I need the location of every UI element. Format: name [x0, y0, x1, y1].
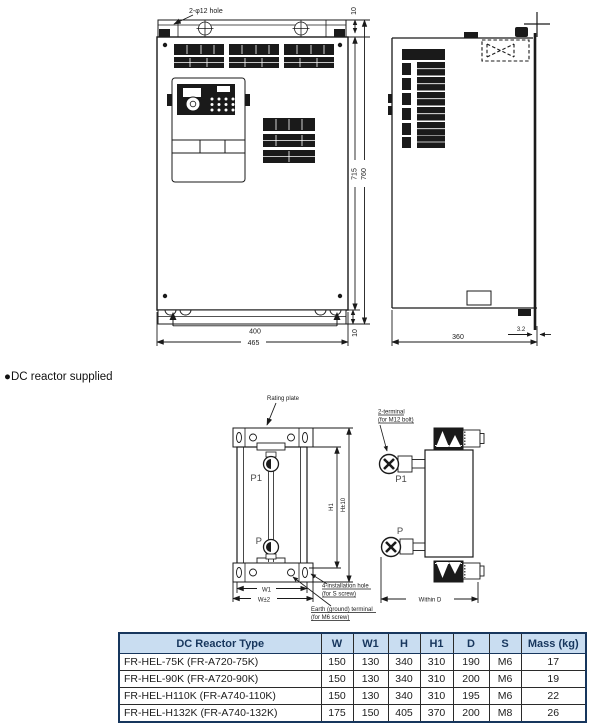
cell-mass: 19 — [521, 671, 586, 688]
front-height-dimensions: 10 715 760 — [346, 7, 370, 324]
dim-h1: H1 — [329, 503, 335, 511]
cell-s: M6 — [489, 654, 521, 671]
dim-w-tol: W±2 — [258, 598, 271, 604]
reactor-p-terminal — [264, 540, 279, 560]
reactor-width-dimensions: W1 W±2 — [233, 582, 313, 604]
cell-h1: 310 — [420, 688, 453, 705]
installation-hole-note: 4-installation hole (for S screw) — [311, 574, 371, 598]
cell-d: 190 — [453, 654, 489, 671]
cell-type: FR-HEL-H132K (FR-A740-132K) — [119, 705, 321, 723]
section-label: ●DC reactor supplied — [4, 371, 113, 383]
header-w: W — [321, 633, 353, 654]
technical-drawings: 2-φ12 hole — [0, 0, 600, 632]
dim-360: 360 — [452, 334, 464, 341]
reactor-side-body — [425, 450, 473, 557]
inverter-front-view: 2-φ12 hole — [157, 7, 370, 347]
p-label: P — [256, 536, 262, 547]
cell-d: 200 — [453, 671, 489, 688]
table-row: FR-HEL-75K (FR-A720-75K) 150 130 340 310… — [119, 654, 586, 671]
hole-note-label: 2-φ12 hole — [189, 8, 223, 15]
dim-within-d: Within D — [419, 598, 442, 604]
cell-h1: 310 — [420, 671, 453, 688]
setting-dial — [186, 97, 200, 111]
cell-w: 150 — [321, 654, 353, 671]
terminal-note: 2-terminal (for M12 bolt) — [378, 410, 414, 452]
cell-w: 150 — [321, 688, 353, 705]
table-row: FR-HEL-90K (FR-A720-90K) 150 130 340 310… — [119, 671, 586, 688]
header-d: D — [453, 633, 489, 654]
cell-type: FR-HEL-90K (FR-A720-90K) — [119, 671, 321, 688]
header-h1: H1 — [420, 633, 453, 654]
cell-mass: 22 — [521, 688, 586, 705]
cooling-fan — [482, 40, 529, 61]
dc-reactor-table: DC Reactor Type W W1 H H1 D S Mass (kg) … — [118, 632, 587, 723]
right-hook — [334, 29, 345, 37]
cell-h: 340 — [388, 654, 420, 671]
cell-d: 195 — [453, 688, 489, 705]
rating-plate-leader — [267, 403, 276, 425]
reactor-bottom-bracket — [233, 563, 313, 582]
side-vent-slats — [402, 49, 445, 148]
cell-type: FR-HEL-75K (FR-A720-75K) — [119, 654, 321, 671]
reactor-front-view: Rating plate P1 — [233, 396, 376, 621]
cell-w1: 130 — [353, 654, 388, 671]
bottom-mounting-bracket — [158, 310, 346, 326]
terminal-cover — [467, 291, 491, 305]
reactor-p1-terminal — [264, 452, 279, 472]
header-dc-reactor-type: DC Reactor Type — [119, 633, 321, 654]
dim-400: 400 — [249, 329, 261, 336]
cell-w: 175 — [321, 705, 353, 723]
table-header-row: DC Reactor Type W W1 H H1 D S Mass (kg) — [119, 633, 586, 654]
reactor-height-dimensions: H1 H±10 — [309, 428, 353, 582]
operation-panel-unit — [167, 78, 250, 182]
side-vent-grille — [263, 118, 315, 163]
cell-s: M8 — [489, 705, 521, 723]
side-p1-label: P1 — [395, 474, 407, 485]
bottom-clamp-assembly — [434, 561, 484, 582]
header-mass: Mass (kg) — [521, 633, 586, 654]
left-hook — [159, 29, 170, 37]
cell-mass: 17 — [521, 654, 586, 671]
display — [183, 88, 201, 97]
dim-3-2: 3.2 — [517, 327, 526, 333]
cell-s: M6 — [489, 671, 521, 688]
table-row: FR-HEL-H110K (FR-A740-110K) 150 130 340 … — [119, 688, 586, 705]
side-p-label: P — [397, 526, 403, 537]
cell-type: FR-HEL-H110K (FR-A740-110K) — [119, 688, 321, 705]
dim-h-tol: H±10 — [341, 497, 347, 512]
rating-plate-label: Rating plate — [267, 396, 300, 402]
side-p-terminal — [382, 538, 426, 557]
dim-top-10: 10 — [351, 7, 358, 15]
cell-h1: 310 — [420, 654, 453, 671]
cell-s: M6 — [489, 688, 521, 705]
cell-h1: 370 — [420, 705, 453, 723]
top-mounting-bracket — [158, 20, 346, 37]
dim-760: 760 — [361, 168, 368, 180]
cell-w1: 130 — [353, 671, 388, 688]
cell-d: 200 — [453, 705, 489, 723]
cell-w: 150 — [321, 671, 353, 688]
inverter-side-view: 360 3.2 — [388, 12, 551, 346]
cell-mass: 26 — [521, 705, 586, 723]
header-h: H — [388, 633, 420, 654]
dim-w1: W1 — [262, 588, 272, 594]
header-w1: W1 — [353, 633, 388, 654]
side-p1-terminal — [380, 455, 426, 474]
top-clamp-assembly — [434, 428, 484, 449]
table-row: FR-HEL-H132K (FR-A740-132K) 175 150 405 … — [119, 705, 586, 723]
header-s: S — [489, 633, 521, 654]
cell-h: 405 — [388, 705, 420, 723]
cell-h: 340 — [388, 671, 420, 688]
cell-w1: 130 — [353, 688, 388, 705]
manual-page: 2-φ12 hole — [0, 0, 600, 725]
cell-w1: 150 — [353, 705, 388, 723]
dim-bottom-10: 10 — [352, 329, 359, 337]
p1-label: P1 — [250, 473, 262, 484]
dim-715: 715 — [352, 168, 359, 180]
reactor-side-view: 2-terminal (for M12 bolt) P1 — [378, 410, 484, 604]
cell-h: 340 — [388, 688, 420, 705]
dim-465: 465 — [248, 340, 260, 347]
